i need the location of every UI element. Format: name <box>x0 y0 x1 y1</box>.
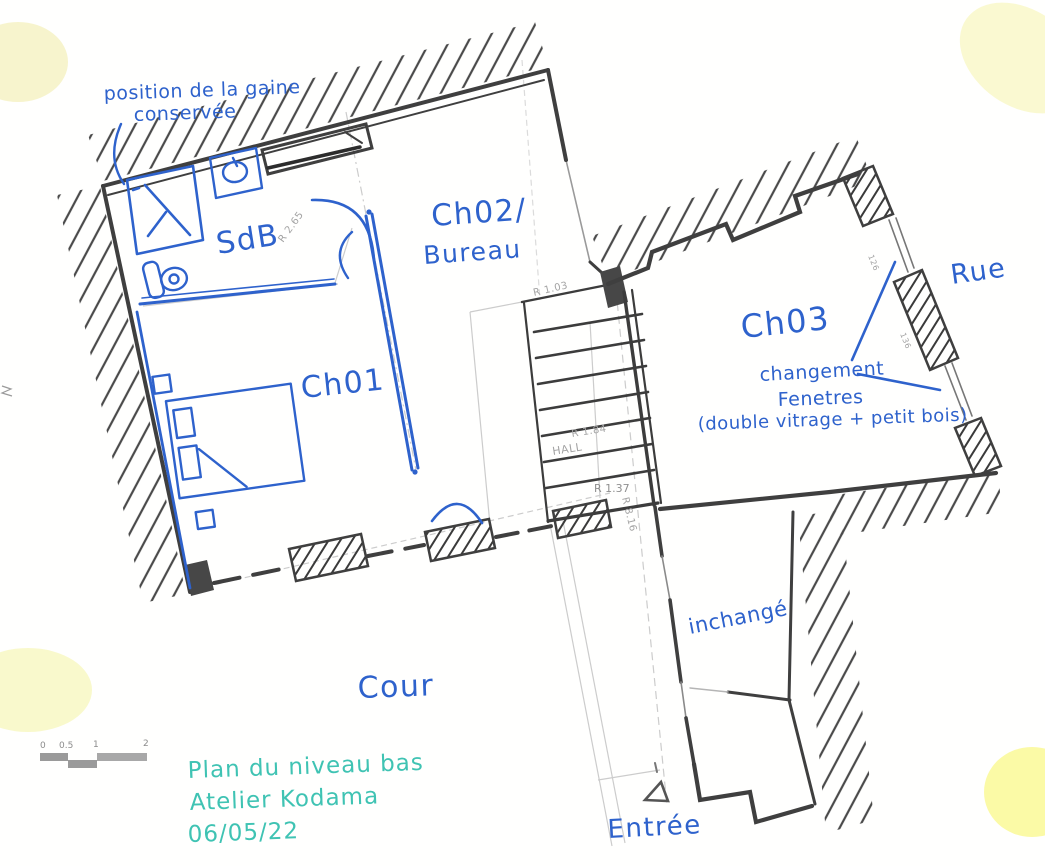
room-label-ch02: Ch02/ <box>430 192 528 234</box>
staircase <box>522 266 661 522</box>
highlight-bottom-left <box>0 648 92 732</box>
highlight-top-left <box>0 22 68 102</box>
pencil-note-136: 136 <box>898 331 913 350</box>
window-note-line3: (double vitrage + petit bois) <box>697 405 968 435</box>
floor-plan-drawing: 0 0.5 1 2 R 2.65 R 1.03 R 1.84 HALL R 1.… <box>0 0 1045 866</box>
scale-tick-1: 1 <box>93 740 99 750</box>
title-line2: Atelier Kodama <box>189 783 379 816</box>
door-arc-ch01 <box>432 504 482 523</box>
title-line3: 06/05/22 <box>187 818 299 848</box>
street-label-rue: Rue <box>949 252 1009 290</box>
rue-wall-pier-bottom <box>955 418 1001 476</box>
edge-pencil-mark <box>2 386 12 396</box>
gaine-note-line2: conservée <box>133 100 236 126</box>
window-leader-1 <box>852 262 895 360</box>
stair-treads <box>534 314 654 488</box>
scanned-floor-plan-page: 0 0.5 1 2 R 2.65 R 1.03 R 1.84 HALL R 1.… <box>0 0 1045 866</box>
scale-tick-0: 0 <box>40 741 46 751</box>
bottom-wall-pier-1 <box>289 534 368 581</box>
corridor-bottom-steps <box>694 764 812 822</box>
pencil-note-r137: R 1.37 <box>594 482 630 495</box>
corridor-inner-wall <box>728 692 790 700</box>
rue-wall-window-pier <box>894 270 958 370</box>
window-note-line2: Fenetres <box>777 386 863 411</box>
pencil-note-r265: R 2.65 <box>277 210 307 245</box>
room-label-ch01: Ch01 <box>299 362 386 406</box>
bottom-wall-pier-2 <box>425 519 495 561</box>
room-label-ch02-sub: Bureau <box>422 234 522 270</box>
room-label-sdb: SdB <box>214 217 282 261</box>
scale-tick-2: 2 <box>143 739 149 749</box>
title-block: Plan du niveau bas Atelier Kodama 06/05/… <box>187 750 424 848</box>
entrance-label: Entrée <box>607 810 703 845</box>
highlight-bottom-right <box>984 747 1045 837</box>
pencil-note-r184: R 1.84 <box>571 424 608 440</box>
rue-wall-pier-top <box>843 166 893 226</box>
scale-tick-05: 0.5 <box>59 741 73 751</box>
highlight-top-right <box>939 0 1045 136</box>
scale-bar: 0 0.5 1 2 <box>40 739 149 768</box>
nightstand-top <box>152 375 171 394</box>
bed-icon <box>152 358 309 532</box>
room-label-ch03: Ch03 <box>739 299 832 346</box>
sdb-south-wall-blue <box>140 284 335 304</box>
door-arc-partition <box>340 232 352 278</box>
corridor-walls <box>645 507 815 822</box>
hatch-ch03-top-wall <box>592 136 872 280</box>
pencil-note-r816: R 8.16 <box>619 496 638 533</box>
title-line1: Plan du niveau bas <box>187 750 424 784</box>
courtyard-label: Cour <box>357 668 435 706</box>
corridor-label-inchange: inchangé <box>686 596 789 639</box>
pencil-note-126: 126 <box>866 253 881 272</box>
nightstand-bottom <box>196 510 215 529</box>
window-note-line1: changement <box>759 358 885 386</box>
